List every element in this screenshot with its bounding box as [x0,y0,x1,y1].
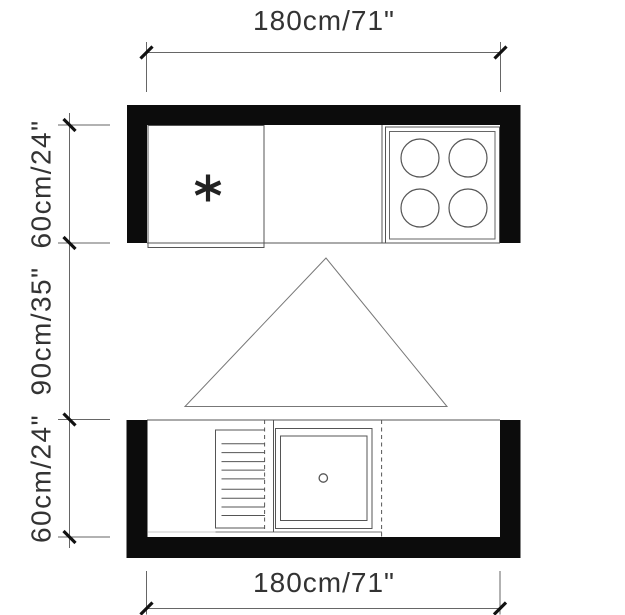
svg-text:60cm/24": 60cm/24" [26,120,57,249]
svg-text:90cm/35": 90cm/35" [26,267,57,396]
svg-text:60cm/24": 60cm/24" [26,414,57,543]
svg-text:180cm/71": 180cm/71" [253,5,395,36]
svg-text:180cm/71": 180cm/71" [253,567,395,598]
